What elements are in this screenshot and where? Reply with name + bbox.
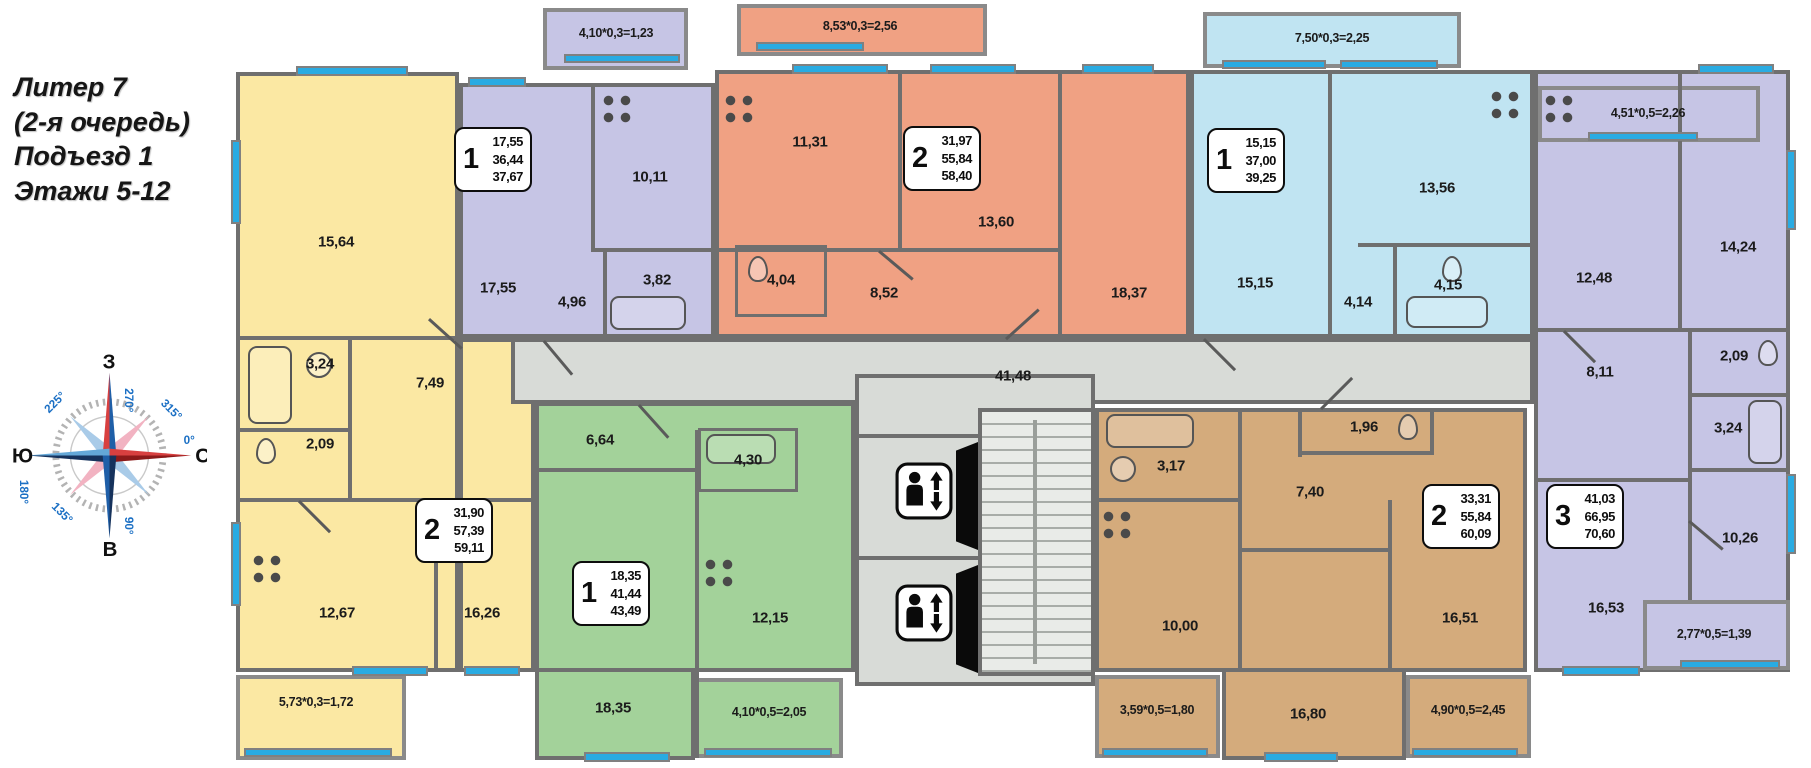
rooms-count: 1: [463, 145, 479, 174]
compass-deg-0: 0°: [184, 434, 196, 447]
room-area-label: 11,31: [792, 134, 827, 151]
compass-south-label: Ю: [12, 444, 33, 467]
apartment-info-card-yellow[interactable]: 2 31,90 57,39 59,11: [415, 498, 493, 563]
window-strip: [930, 64, 1016, 74]
balcony-area-label: 8,53*0,3=2,56: [823, 19, 897, 33]
wall: [898, 70, 902, 252]
page-title: Литер 7 (2-я очередь) Подъезд 1 Этажи 5-…: [14, 70, 190, 208]
wall: [1393, 245, 1397, 338]
compass-deg-180: 180°: [17, 480, 30, 505]
bathtub-icon: [1106, 414, 1194, 448]
room-area-label: 4,96: [558, 294, 586, 311]
apartment-info-card-purple[interactable]: 3 41,03 66,95 70,60: [1546, 484, 1624, 549]
toilet-icon: [256, 438, 276, 464]
room-area-label: 13,60: [978, 214, 1014, 231]
window-strip: [1222, 60, 1326, 69]
balcony-area-label: 4,10*0,3=1,23: [579, 26, 653, 40]
wall: [1534, 478, 1692, 482]
apartment-area: 57,39: [445, 522, 484, 540]
total-area: 39,25: [1237, 169, 1276, 187]
toilet-icon: [1398, 414, 1418, 440]
apartment-area: 66,95: [1576, 508, 1615, 526]
room-area-label: 12,67: [319, 605, 355, 622]
window-strip: [1786, 150, 1796, 230]
apartment-area: 37,00: [1237, 152, 1276, 170]
stove-icon: [1488, 88, 1524, 124]
wall: [1358, 243, 1534, 247]
room-area-label: 16,51: [1442, 610, 1478, 627]
window-strip: [1412, 748, 1518, 757]
wall: [855, 434, 981, 438]
wall: [591, 83, 595, 250]
toilet-icon: [1758, 340, 1778, 366]
wall: [1688, 332, 1692, 600]
window-strip: [464, 666, 520, 676]
title-line: Этажи 5-12: [14, 174, 190, 209]
room-area-label: 12,15: [752, 610, 788, 627]
room-area-label: 3,17: [1157, 458, 1185, 475]
compass-deg-270: 270°: [122, 388, 135, 413]
wall: [236, 428, 350, 432]
wall: [603, 252, 607, 338]
room-area-label: 1,96: [1350, 419, 1378, 436]
room-area-label: 10,26: [1722, 530, 1758, 547]
window-strip: [564, 54, 680, 63]
stove-icon: [1100, 508, 1136, 544]
toilet-icon: [748, 256, 768, 282]
room-area-label: 15,15: [1237, 275, 1273, 292]
living-area: 31,97: [933, 132, 972, 150]
rooms-count: 2: [1431, 502, 1447, 531]
living-area: 41,03: [1576, 490, 1615, 508]
apartment-info-card-orange[interactable]: 2 31,97 55,84 58,40: [903, 126, 981, 191]
room-area-label: 4,04: [767, 272, 795, 289]
rooms-count: 2: [424, 516, 440, 545]
living-area: 17,55: [484, 133, 523, 151]
room-area-label: 2,09: [306, 436, 334, 453]
wall: [1328, 70, 1332, 338]
window-strip: [704, 748, 832, 757]
window-strip: [756, 42, 864, 51]
compass-deg-315: 315°: [158, 397, 185, 424]
room-area-label: 3,24: [1714, 420, 1742, 437]
window-strip: [1562, 666, 1640, 676]
wall: [1690, 393, 1790, 397]
stair-rail: [1033, 420, 1037, 664]
balcony-area-label: 5,73*0,3=1,72: [279, 695, 353, 709]
wall: [1690, 468, 1790, 472]
living-area: 33,31: [1452, 490, 1491, 508]
window-strip: [1680, 660, 1780, 669]
floorplan-page: Литер 7 (2-я очередь) Подъезд 1 Этажи 5-…: [0, 0, 1811, 768]
room-area-label: 16,26: [464, 605, 500, 622]
total-area: 37,67: [484, 168, 523, 186]
room-area-label: 10,11: [632, 169, 667, 186]
apartment-area: 36,44: [484, 151, 523, 169]
window-strip: [1102, 748, 1208, 757]
stove-icon: [250, 552, 286, 588]
room-area-label: 17,55: [480, 280, 516, 297]
window-strip: [1264, 752, 1338, 762]
apartment-area: 55,84: [933, 150, 972, 168]
apartment-area: 55,84: [1452, 508, 1491, 526]
wall: [1058, 70, 1062, 338]
window-strip: [1588, 132, 1698, 141]
room-area-label: 8,52: [870, 285, 898, 302]
bathtub-icon: [610, 296, 686, 330]
room-area-label: 4,30: [734, 452, 762, 469]
room-area-label: 7,40: [1296, 484, 1324, 501]
window-strip: [296, 66, 408, 76]
window-strip: [1698, 64, 1774, 74]
rooms-count: 3: [1555, 502, 1571, 531]
sink-icon: [1110, 456, 1136, 482]
wall: [1430, 408, 1434, 455]
total-area: 70,60: [1576, 525, 1615, 543]
corridor-area-label: 41,48: [995, 368, 1031, 385]
window-strip: [584, 752, 670, 762]
balcony-area-label: 4,90*0,5=2,45: [1431, 703, 1505, 717]
wall: [855, 556, 981, 560]
room-area-label: 13,56: [1419, 180, 1455, 197]
rooms-count: 2: [912, 144, 928, 173]
room-area-label: 16,53: [1588, 600, 1624, 617]
stove-icon: [702, 556, 738, 592]
elevator-shaft-wedge: [956, 442, 978, 550]
elevator-shaft-wedge: [956, 565, 978, 673]
room-area-label: 4,14: [1344, 294, 1372, 311]
room-area-label: 12,48: [1576, 270, 1612, 287]
living-area: 18,35: [602, 567, 641, 585]
balcony-area-label: 4,51*0,5=2,26: [1611, 106, 1685, 120]
room-area-label: 7,49: [416, 375, 444, 392]
apartment-purple-region: [1534, 70, 1790, 672]
title-line: Литер 7: [14, 70, 190, 105]
bathtub-icon: [248, 346, 292, 424]
title-line: (2-я очередь): [14, 105, 190, 140]
wall: [1298, 451, 1434, 455]
apartment-info-card-lavender[interactable]: 1 17,55 36,44 37,67: [454, 127, 532, 192]
window-strip: [1082, 64, 1154, 74]
compass-north-label: С: [195, 444, 207, 467]
total-area: 43,49: [602, 602, 641, 620]
living-area: 31,90: [445, 504, 484, 522]
wall: [535, 468, 699, 472]
apartment-info-card-brown[interactable]: 2 33,31 55,84 60,09: [1422, 484, 1500, 549]
window-strip: [231, 522, 241, 606]
room-area-label: 14,24: [1720, 239, 1756, 256]
window-strip: [468, 77, 526, 87]
window-strip: [231, 140, 241, 224]
balcony-area-label: 3,59*0,5=1,80: [1120, 703, 1194, 717]
room-area-label: 4,15: [1434, 277, 1462, 294]
room-area-label: 15,64: [318, 234, 354, 251]
total-area: 58,40: [933, 167, 972, 185]
room-area-label: 6,64: [586, 432, 614, 449]
window-strip: [1786, 474, 1796, 554]
elevator-icon: [895, 462, 953, 520]
compass-west-label: З: [103, 351, 116, 374]
wall: [1095, 498, 1242, 502]
bathtub-icon: [1748, 400, 1782, 464]
stove-icon: [1542, 92, 1578, 128]
room-area-label: 18,37: [1111, 285, 1147, 302]
room-area-label: 2,09: [1720, 348, 1748, 365]
balcony-area-label: 7,50*0,3=2,25: [1295, 31, 1369, 45]
compass-deg-135: 135°: [49, 500, 76, 527]
wall: [348, 338, 352, 500]
compass-deg-90: 90°: [122, 517, 135, 535]
balcony-area-label: 4,10*0,5=2,05: [732, 705, 806, 719]
room-area-label: 10,00: [1162, 618, 1198, 635]
room-area-label: 8,11: [1586, 364, 1613, 381]
room-area-label: 3,82: [643, 272, 671, 289]
window-strip: [352, 666, 428, 676]
wall: [1238, 408, 1242, 672]
rooms-count: 1: [581, 579, 597, 608]
apartment-area: 41,44: [602, 585, 641, 603]
room-area-label: 16,80: [1290, 706, 1326, 723]
wall: [1388, 500, 1392, 672]
wall: [1534, 328, 1790, 332]
rooms-count: 1: [1216, 146, 1232, 175]
total-area: 60,09: [1452, 525, 1491, 543]
wall: [1242, 548, 1388, 552]
apartment-info-card-blue[interactable]: 1 15,15 37,00 39,25: [1207, 128, 1285, 193]
bathtub-icon: [1406, 296, 1488, 328]
compass-east-label: В: [103, 538, 118, 561]
room-area-label: 18,35: [595, 700, 631, 717]
balcony-area-label: 2,77*0,5=1,39: [1677, 627, 1751, 641]
window-strip: [792, 64, 888, 74]
elevator-icon: [895, 584, 953, 642]
title-line: Подъезд 1: [14, 139, 190, 174]
wall: [1298, 408, 1302, 457]
stove-icon: [600, 92, 636, 128]
compass-rose-icon: З С Ю В 270° 315° 0° 90° 180° 225° 135°: [12, 348, 207, 568]
compass-deg-225: 225°: [42, 389, 69, 416]
living-area: 15,15: [1237, 134, 1276, 152]
total-area: 59,11: [445, 539, 484, 557]
wall: [591, 248, 715, 252]
stove-icon: [722, 92, 758, 128]
window-strip: [1340, 60, 1438, 69]
apartment-info-card-green[interactable]: 1 18,35 41,44 43,49: [572, 561, 650, 626]
room-area-label: 3,24: [306, 356, 334, 373]
window-strip: [244, 748, 392, 757]
